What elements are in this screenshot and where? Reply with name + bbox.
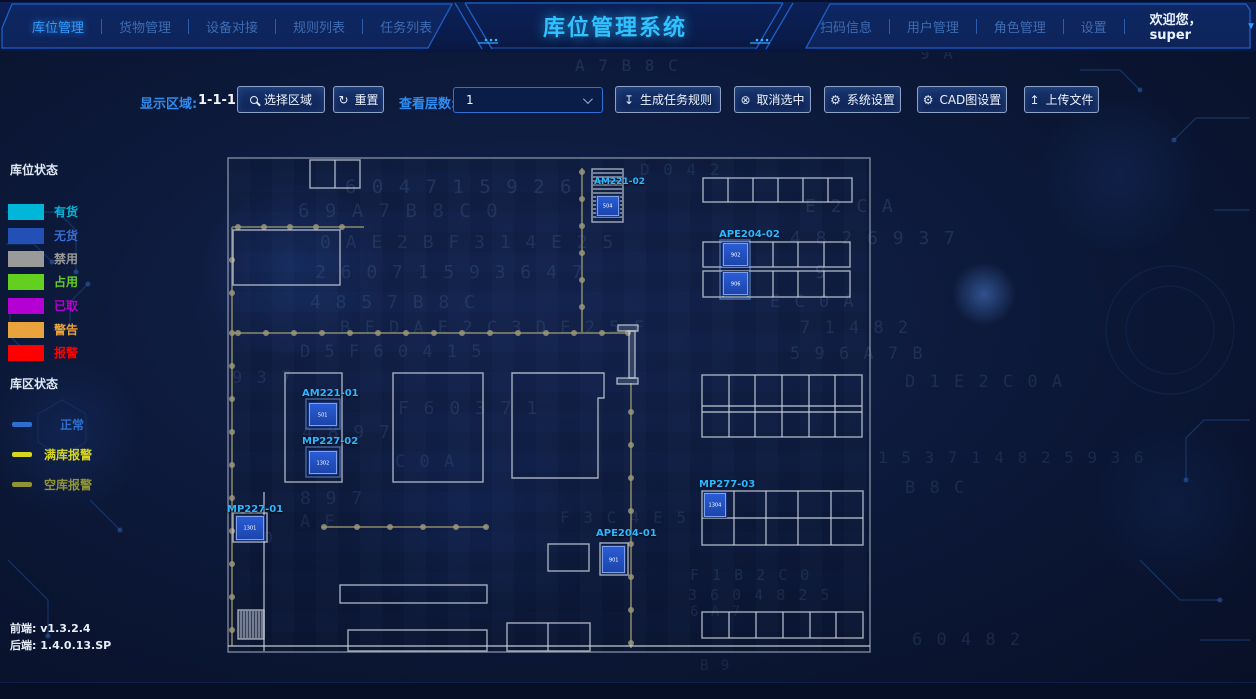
cad-settings-button[interactable]: ⚙ CAD图设置 (917, 86, 1007, 113)
generate-task-rules-button[interactable]: ↧ 生成任务规则 (615, 86, 721, 113)
layer-label: 查看层数: (399, 93, 456, 112)
generate-icon: ↧ (624, 94, 634, 106)
slot-status-title: 库位状态 (10, 161, 58, 178)
nav-item-devices[interactable]: 设备对接 (204, 13, 260, 40)
storage-cell[interactable]: 1301 (236, 516, 264, 540)
nav-separator (889, 19, 890, 34)
storage-cell[interactable]: 902 (723, 243, 748, 266)
color-line-swatch (12, 482, 32, 487)
unit-label: MP277-03 (699, 479, 755, 490)
storage-cell[interactable]: 1304 (704, 493, 726, 517)
upload-icon: ↥ (1029, 94, 1039, 106)
layer-select[interactable]: 1 (453, 87, 603, 113)
select-region-button[interactable]: 选择区域 (237, 86, 325, 113)
nav-item-tasks[interactable]: 任务列表 (378, 13, 434, 40)
unit-label: MP227-01 (227, 504, 283, 515)
backend-version: 后端: 1.4.0.13.SP (10, 637, 111, 653)
gear-icon: ⚙ (923, 94, 934, 106)
unit-label: MP227-02 (302, 436, 358, 447)
cancel-icon: ⊗ (740, 94, 750, 106)
zone-item-empty-alarm: 空库报警 (12, 476, 92, 493)
color-swatch (8, 345, 44, 361)
legend-item-hasgoods: 有货 (8, 203, 78, 220)
nav-item-rules[interactable]: 规则列表 (291, 13, 347, 40)
storage-cell[interactable]: 901 (602, 546, 625, 573)
nav-separator (362, 19, 363, 34)
layer-select-value: 1 (466, 93, 583, 107)
color-line-swatch (12, 422, 32, 427)
legend-item-disabled: 禁用 (8, 250, 78, 267)
nav-item-storage[interactable]: 库位管理 (30, 13, 86, 40)
search-icon (250, 96, 258, 104)
display-area-label: 显示区域: (140, 93, 197, 112)
app-title: 库位管理系统 (455, 10, 775, 42)
legend-item-alarm: 报警 (8, 344, 78, 361)
storage-cell[interactable]: 501 (309, 403, 337, 426)
zone-item-full-alarm: 满库报警 (12, 446, 92, 463)
nav-separator (1124, 19, 1125, 34)
nav-item-goods[interactable]: 货物管理 (117, 13, 173, 40)
nav-separator (101, 19, 102, 34)
chevron-down-icon (583, 94, 593, 104)
nav-separator (275, 19, 276, 34)
gear-icon: ⚙ (830, 94, 841, 106)
color-swatch (8, 322, 44, 338)
color-swatch (8, 204, 44, 220)
nav-separator (1063, 19, 1064, 34)
zone-status-title: 库区状态 (10, 375, 58, 392)
legend-item-taken: 已取 (8, 297, 78, 314)
nav-separator (976, 19, 977, 34)
reset-icon: ↻ (338, 94, 348, 106)
welcome-user-text: 欢迎您，super (1150, 9, 1233, 43)
cancel-selection-button[interactable]: ⊗ 取消选中 (734, 86, 811, 113)
system-settings-button[interactable]: ⚙ 系统设置 (824, 86, 901, 113)
unit-label: AM221-02 (594, 177, 645, 187)
nav-item-settings[interactable]: 设置 (1079, 13, 1109, 40)
reset-button[interactable]: ↻ 重置 (333, 86, 384, 113)
secondary-nav: 扫码信息 用户管理 角色管理 设置 欢迎您，super ▼ (818, 0, 1256, 52)
main-nav: 库位管理 货物管理 设备对接 规则列表 任务列表 (30, 0, 434, 52)
warehouse-management-app: { "header": { "brand_title": "库位管理系统", "… (0, 0, 1256, 699)
storage-cell[interactable]: 906 (723, 272, 748, 295)
color-line-swatch (12, 452, 32, 457)
frontend-version: 前端: v1.3.2.4 (10, 620, 91, 636)
color-swatch (8, 251, 44, 267)
unit-label: AM221-01 (302, 388, 359, 399)
display-area-value: 1-1-1 (198, 93, 236, 108)
color-swatch (8, 298, 44, 314)
upload-file-button[interactable]: ↥ 上传文件 (1024, 86, 1099, 113)
color-swatch (8, 228, 44, 244)
bottom-bar (0, 682, 1256, 699)
legend-item-warning: 警告 (8, 321, 78, 338)
legend-item-empty: 无货 (8, 227, 78, 244)
color-swatch (8, 274, 44, 290)
nav-item-roles[interactable]: 角色管理 (992, 13, 1048, 40)
nav-item-scan[interactable]: 扫码信息 (818, 13, 874, 40)
unit-label: APE204-01 (596, 528, 657, 539)
nav-separator (188, 19, 189, 34)
user-dropdown-caret-icon[interactable]: ▼ (1246, 21, 1256, 32)
legend-item-occupied: 占用 (8, 273, 78, 290)
storage-cell[interactable]: 1302 (309, 451, 337, 474)
storage-cell[interactable]: 504 (597, 196, 619, 216)
nav-item-users[interactable]: 用户管理 (905, 13, 961, 40)
unit-label: APE204-02 (719, 229, 780, 240)
zone-item-normal: 正常 (12, 416, 84, 433)
top-edge-line (0, 0, 1256, 2)
